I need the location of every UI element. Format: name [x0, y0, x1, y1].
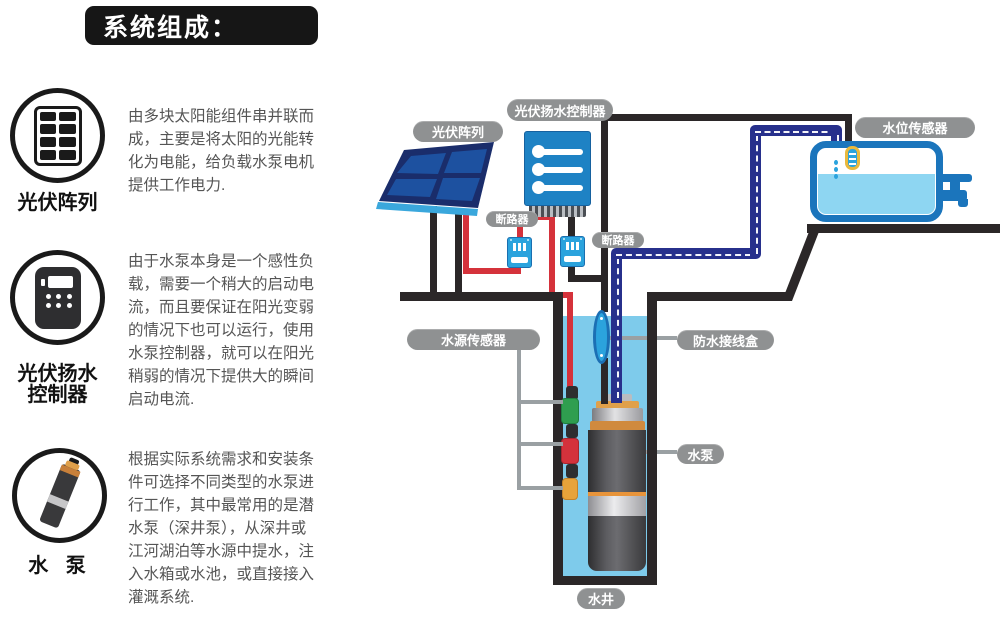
- pv-dc-wire-run: [463, 268, 520, 274]
- breaker-screw: [563, 238, 565, 240]
- pump-pill: 水泵: [677, 444, 724, 464]
- breaker-prong: [513, 243, 516, 251]
- panel-cell: [59, 112, 76, 122]
- panel-cell: [40, 124, 57, 134]
- water-pipe-horizontal-low: [611, 248, 756, 259]
- controller-description: 由于水泵本身是一个感性负 载，需要一个稍大的启动电 流，而且要保证在阳光变弱 的…: [128, 250, 346, 411]
- controller-icon-body: [35, 267, 81, 329]
- water-source-sensor-pill: 水源传感器: [407, 329, 540, 350]
- well-bottom: [553, 576, 657, 585]
- pump-icon-body: [39, 463, 81, 528]
- pump-label: 水 泵: [14, 556, 106, 577]
- breaker-slot: [564, 256, 581, 262]
- source-sensor-bracket: [517, 349, 521, 490]
- well-wall-right: [647, 292, 657, 585]
- pump-neck-silver: [592, 408, 643, 422]
- platform-ground: [807, 224, 1000, 233]
- controller-slider: [532, 163, 583, 176]
- controller-label: 光伏扬水 控制器: [5, 364, 110, 406]
- pump-icon-band: [46, 494, 68, 509]
- pump-icon: [12, 448, 107, 543]
- breaker2-out-cable-elbow: [568, 275, 608, 282]
- solar-cell: [436, 178, 480, 201]
- panel-leg-right: [455, 212, 462, 294]
- breaker-slot: [511, 257, 528, 263]
- water-level-sensor-pill: 水位传感器: [855, 117, 975, 138]
- junction-box-screw: [600, 354, 603, 357]
- water-pipe-riser: [611, 253, 622, 403]
- pipe-dashes: [616, 254, 751, 256]
- water-pipe-horizontal-top: [750, 125, 842, 136]
- circuit-breaker-2: [560, 236, 585, 267]
- page-title: 系统组成：: [85, 6, 318, 45]
- button-dot: [56, 303, 61, 308]
- button-dot: [46, 303, 51, 308]
- pv-array-icon-panel: [34, 106, 82, 166]
- controller-slider: [532, 145, 583, 158]
- ground-right: [647, 292, 787, 301]
- controller-icon-screen: [48, 276, 73, 288]
- source-sensor-cable-upper: [549, 214, 555, 298]
- controller-terminal-block: [529, 206, 586, 217]
- pv-array-label: 光伏阵列: [10, 193, 105, 214]
- pv-array-icon: [10, 88, 105, 183]
- source-sensor-branch: [517, 486, 563, 490]
- panel-cell: [59, 150, 76, 160]
- water-source-sensor-red: [561, 438, 579, 464]
- well-pill: 水井: [577, 588, 625, 609]
- breaker1-pill: 断路器: [486, 211, 538, 227]
- pv-dc-wire-down: [463, 212, 469, 274]
- source-sensor-cable-lower: [567, 292, 573, 392]
- junction-box-pill: 防水接线盒: [677, 330, 774, 350]
- controller-slider: [532, 181, 583, 194]
- breaker-screw: [510, 239, 512, 241]
- faucet-spout: [958, 199, 968, 207]
- circuit-breaker-1: [507, 237, 532, 268]
- breaker-prong: [576, 242, 579, 250]
- breaker-screw: [580, 238, 582, 240]
- page-title-text: 系统组成：: [103, 8, 238, 44]
- water-drop: [834, 167, 838, 172]
- breaker-prong: [571, 242, 574, 250]
- junction-to-pump-cable: [601, 358, 608, 404]
- breaker2-pill: 断路器: [592, 232, 644, 248]
- pv-array-description: 由多块太阳能组件串并联而 成，主要是将太阳的光能转 化为电能，给负载水泵电机 提…: [128, 105, 343, 197]
- source-sensor-branch: [517, 442, 563, 446]
- breaker-screw: [527, 239, 529, 241]
- controller-icon: [10, 250, 105, 345]
- infographic-root: 系统组成： 光伏阵列 由多块太阳能组件串并联而 成，主要是将太阳的光能转 化为电…: [0, 0, 1000, 632]
- slope-ground: [782, 224, 822, 301]
- water-source-sensor-green: [561, 398, 579, 424]
- pipe-dashes: [755, 131, 837, 133]
- solar-panel-frame: [379, 142, 494, 208]
- pipe-dashes: [756, 135, 758, 254]
- button-dot: [67, 294, 72, 299]
- button-dot: [56, 294, 61, 299]
- controller-icon-buttons: [46, 294, 74, 308]
- sensor-connector: [566, 464, 578, 478]
- breaker-prong: [518, 243, 521, 251]
- pv-array-pill: 光伏阵列: [413, 121, 503, 142]
- controller-icon-led: [41, 279, 45, 286]
- water-tank: [810, 141, 943, 222]
- solar-cell: [387, 179, 437, 197]
- breaker-prong: [523, 243, 526, 251]
- float-stripe: [849, 163, 856, 165]
- pump-silver-band: [588, 496, 646, 516]
- pump-cable-trunk: [601, 114, 608, 312]
- pipe-dashes: [617, 258, 619, 398]
- float-stripe: [849, 153, 856, 155]
- water-pipe-vertical: [750, 130, 761, 259]
- solar-cell: [397, 153, 446, 174]
- panel-leg-left: [430, 206, 437, 296]
- panel-cell: [59, 124, 76, 134]
- panel-cell: [40, 137, 57, 147]
- junction-box-screw: [600, 317, 603, 320]
- tank-sensor-cable-horizontal: [601, 114, 852, 121]
- panel-cell: [59, 137, 76, 147]
- panel-cell: [40, 150, 57, 160]
- water-source-sensor-yellow: [562, 478, 578, 500]
- water-drop: [834, 174, 838, 179]
- solar-cell: [444, 149, 487, 173]
- button-dot: [67, 303, 72, 308]
- button-dot: [46, 294, 51, 299]
- float-stripe: [849, 158, 856, 160]
- controller-pill: 光伏扬水控制器: [507, 99, 613, 121]
- source-sensor-branch: [517, 400, 563, 404]
- pv-pumping-controller: [524, 131, 591, 206]
- waterproof-junction-box: [593, 310, 610, 364]
- panel-cell: [40, 112, 57, 122]
- ground-left: [400, 292, 563, 301]
- pump-description: 根据实际系统需求和安装条 件可选择不同类型的水泵进 行工作，其中最常用的是潜 水…: [128, 448, 346, 609]
- breaker-prong: [566, 242, 569, 250]
- sensor-connector: [566, 424, 578, 438]
- water-drop: [834, 160, 838, 165]
- water-level-float-sensor: [845, 146, 860, 170]
- tank-water: [818, 174, 935, 214]
